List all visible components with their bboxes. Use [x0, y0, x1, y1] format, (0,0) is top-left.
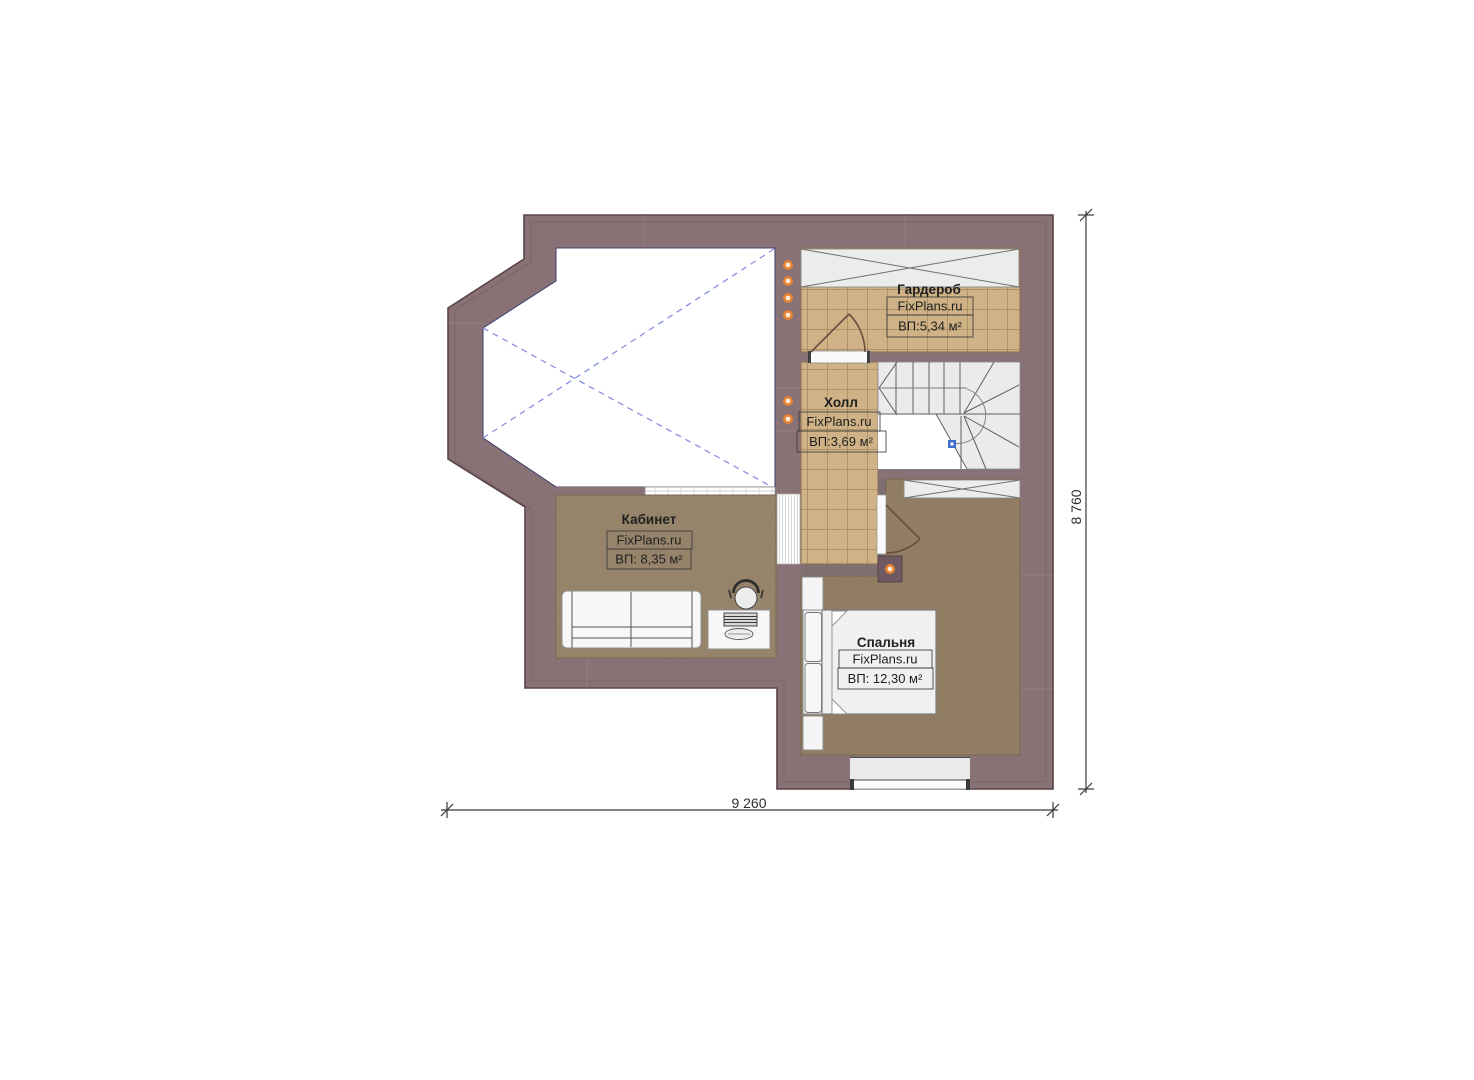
svg-text:9 260: 9 260	[731, 795, 766, 811]
svg-text:FixPlans.ru: FixPlans.ru	[616, 533, 681, 548]
svg-text:ВП:5,34 м²: ВП:5,34 м²	[898, 319, 962, 334]
svg-text:FixPlans.ru: FixPlans.ru	[806, 414, 871, 429]
svg-text:Гардероб: Гардероб	[897, 282, 961, 297]
svg-text:Холл: Холл	[824, 395, 858, 410]
svg-text:Спальня: Спальня	[857, 635, 915, 650]
svg-text:8 760: 8 760	[1068, 489, 1084, 524]
svg-text:FixPlans.ru: FixPlans.ru	[852, 652, 917, 667]
svg-text:Кабинет: Кабинет	[622, 512, 677, 527]
svg-text:FixPlans.ru: FixPlans.ru	[897, 299, 962, 314]
svg-text:ВП: 12,30 м²: ВП: 12,30 м²	[848, 671, 923, 686]
svg-text:ВП: 8,35 м²: ВП: 8,35 м²	[615, 552, 683, 567]
svg-text:ВП:3,69 м²: ВП:3,69 м²	[809, 434, 873, 449]
